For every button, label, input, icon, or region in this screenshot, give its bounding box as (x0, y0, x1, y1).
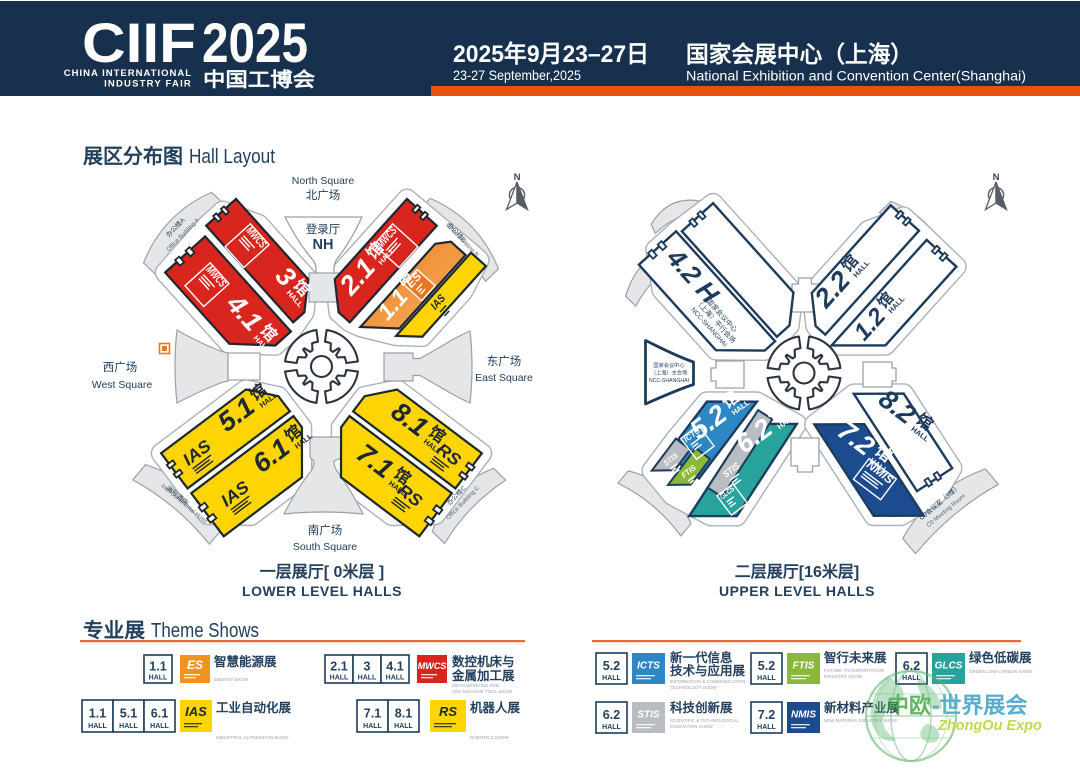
svg-text:CIIF: CIIF (82, 11, 196, 74)
svg-text:一层展厅[ 0米层 ]: 一层展厅[ 0米层 ] (260, 562, 384, 581)
svg-text:Theme Shows: Theme Shows (151, 620, 259, 642)
svg-text:2025: 2025 (202, 11, 308, 74)
svg-text:中国工博会: 中国工博会 (203, 68, 316, 91)
svg-text:HALL: HALL (330, 674, 349, 681)
svg-text:二层展厅[16米层]: 二层展厅[16米层] (735, 562, 859, 581)
svg-text:专业展: 专业展 (83, 618, 145, 642)
svg-text:N: N (514, 172, 521, 183)
svg-text:-世界展会: -世界展会 (932, 693, 1027, 718)
svg-text:UPPER LEVEL HALLS: UPPER LEVEL HALLS (719, 583, 875, 599)
svg-text:新一代信息: 新一代信息 (670, 650, 733, 665)
svg-text:HALL: HALL (363, 723, 382, 730)
svg-text:ZhongOu Expo: ZhongOu Expo (937, 718, 1042, 734)
svg-text:HALL: HALL (386, 674, 405, 681)
svg-text:3: 3 (364, 659, 371, 673)
svg-text:7.2: 7.2 (758, 708, 775, 722)
svg-text:HALL: HALL (150, 723, 169, 730)
svg-text:西广场: 西广场 (103, 360, 138, 374)
svg-text:INDUSTRY SHOW: INDUSTRY SHOW (824, 674, 863, 679)
svg-text:6.2: 6.2 (603, 708, 620, 722)
svg-text:National Exhibition and Conven: National Exhibition and Convention Cente… (686, 68, 1026, 84)
svg-text:科技创新展: 科技创新展 (670, 700, 733, 715)
svg-text:东广场: 东广场 (487, 354, 522, 368)
svg-text:中欧: 中欧 (887, 693, 931, 718)
svg-text:TECHNOLOGY SHOW: TECHNOLOGY SHOW (670, 685, 717, 690)
svg-text:5.1: 5.1 (120, 707, 137, 721)
svg-text:机器人展: 机器人展 (470, 700, 521, 715)
svg-text:ROBOTICS SHOW: ROBOTICS SHOW (470, 735, 510, 740)
svg-text:1.1: 1.1 (149, 659, 166, 673)
svg-text:6.1: 6.1 (151, 707, 168, 721)
svg-text:ICTS: ICTS (637, 661, 660, 672)
svg-text:Hall Layout: Hall Layout (189, 146, 275, 168)
svg-text:数控机床与: 数控机床与 (451, 654, 515, 669)
svg-text:绿色低碳展: 绿色低碳展 (969, 650, 1032, 665)
svg-text:登录厅: 登录厅 (306, 222, 341, 236)
svg-text:智慧能源展: 智慧能源展 (213, 654, 277, 669)
svg-text:HALL: HALL (149, 674, 168, 681)
svg-text:GREEN LOW-CARBON SHOW: GREEN LOW-CARBON SHOW (969, 669, 1033, 674)
svg-text:2.1: 2.1 (330, 659, 347, 673)
svg-text:INDUSTRIAL AUTOMATION SHOW: INDUSTRIAL AUTOMATION SHOW (216, 735, 289, 740)
svg-text:ES: ES (187, 658, 203, 672)
svg-text:7.1: 7.1 (364, 707, 381, 721)
svg-text:南广场: 南广场 (308, 523, 343, 537)
svg-text:北广场: 北广场 (306, 188, 341, 202)
svg-text:HALL: HALL (757, 724, 776, 731)
svg-text:West Square: West Square (92, 379, 153, 391)
svg-text:INNOVATION SHOW: INNOVATION SHOW (670, 724, 713, 729)
svg-text:South Square: South Square (293, 541, 357, 553)
svg-text:（上海）主会场: （上海）主会场 (651, 369, 687, 377)
svg-text:MWCS: MWCS (418, 661, 447, 671)
svg-text:工业自动化展: 工业自动化展 (216, 700, 292, 715)
svg-text:IAS: IAS (185, 704, 207, 719)
svg-text:HALL: HALL (757, 675, 776, 682)
svg-text:East Square: East Square (475, 372, 533, 384)
svg-text:4.1: 4.1 (386, 659, 403, 673)
svg-text:STIS: STIS (637, 710, 660, 721)
svg-text:8.1: 8.1 (395, 707, 412, 721)
svg-text:金属加工展: 金属加工展 (451, 668, 515, 683)
svg-text:FUTURE TRANSPORTATION: FUTURE TRANSPORTATION (824, 668, 884, 673)
svg-text:NCC-SHANGHAI: NCC-SHANGHAI (649, 378, 689, 384)
svg-text:HALL: HALL (602, 675, 621, 682)
svg-text:INDUSTRY FAIR: INDUSTRY FAIR (104, 79, 192, 90)
svg-text:CNC MACHINE TOOL SHOW: CNC MACHINE TOOL SHOW (452, 689, 513, 694)
svg-text:国家会展中心（上海）: 国家会展中心（上海） (686, 41, 913, 67)
svg-text:NMIS: NMIS (791, 710, 816, 721)
svg-text:SCIENTIFIC & TECHNOLOGICAL: SCIENTIFIC & TECHNOLOGICAL (670, 718, 739, 723)
svg-text:展区分布图: 展区分布图 (83, 144, 183, 168)
svg-text:23-27 September,2025: 23-27 September,2025 (453, 67, 581, 83)
svg-text:FTIS: FTIS (793, 661, 815, 672)
svg-text:RS: RS (439, 704, 457, 719)
svg-text:CHINA INTERNATIONAL: CHINA INTERNATIONAL (64, 68, 192, 79)
svg-text:ENERGY SHOW: ENERGY SHOW (214, 677, 249, 682)
svg-text:2025年9月23–27日: 2025年9月23–27日 (453, 40, 649, 68)
svg-text:HALL: HALL (358, 674, 377, 681)
svg-text:智行未来展: 智行未来展 (823, 650, 887, 665)
svg-text:HALL: HALL (394, 723, 413, 730)
svg-text:5.2: 5.2 (603, 659, 620, 673)
svg-text:HALL: HALL (119, 723, 138, 730)
svg-text:North Square: North Square (292, 175, 355, 187)
svg-text:技术与应用展: 技术与应用展 (670, 663, 746, 678)
svg-text:NEW MATERIAL INDUSTRY SHOW: NEW MATERIAL INDUSTRY SHOW (824, 718, 898, 723)
svg-text:INFORMATION & COMMUNICATION: INFORMATION & COMMUNICATION (670, 679, 745, 684)
svg-text:GLCS: GLCS (935, 661, 963, 672)
svg-text:HALL: HALL (602, 724, 621, 731)
svg-text:1.1: 1.1 (89, 707, 106, 721)
svg-text:HALL: HALL (88, 723, 107, 730)
svg-text:国家会议中心: 国家会议中心 (653, 361, 684, 369)
svg-text:N: N (993, 172, 1000, 183)
svg-text:5.2: 5.2 (758, 659, 775, 673)
svg-text:NH: NH (313, 237, 334, 253)
svg-text:LOWER LEVEL HALLS: LOWER LEVEL HALLS (242, 583, 402, 599)
svg-text:METALWORKING AND: METALWORKING AND (452, 683, 500, 688)
